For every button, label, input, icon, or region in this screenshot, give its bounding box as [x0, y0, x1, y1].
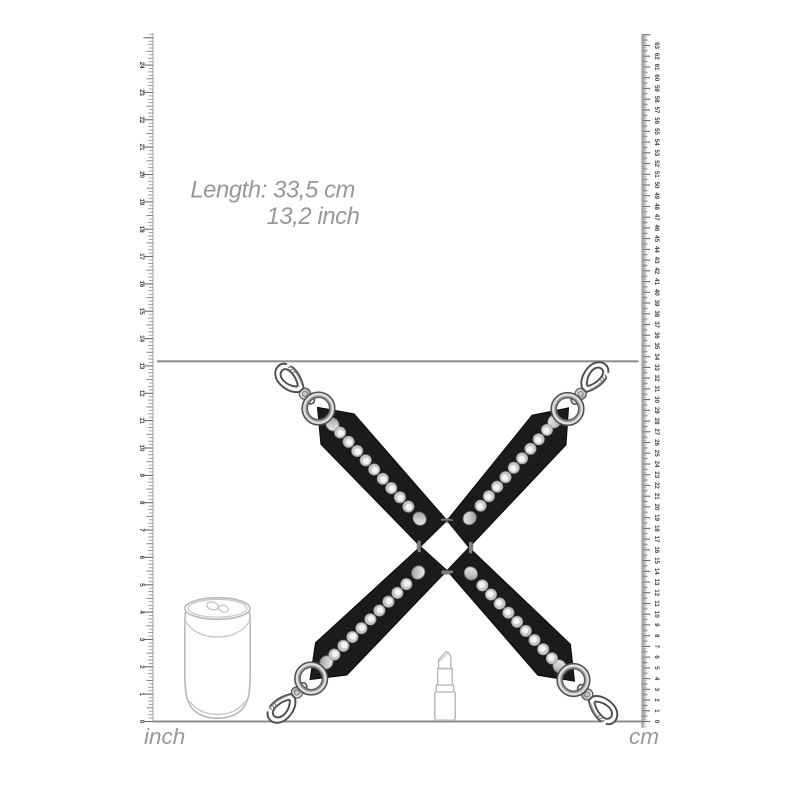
svg-text:44: 44: [653, 246, 660, 253]
svg-text:58: 58: [653, 96, 660, 103]
svg-text:13,2 inch: 13,2 inch: [267, 203, 360, 230]
svg-text:5: 5: [653, 666, 660, 670]
svg-text:15: 15: [653, 557, 660, 564]
svg-text:9: 9: [653, 623, 660, 627]
svg-text:24: 24: [653, 461, 660, 468]
svg-text:60: 60: [653, 74, 660, 81]
svg-text:7: 7: [138, 528, 145, 532]
svg-text:26: 26: [653, 439, 660, 446]
svg-text:cm: cm: [629, 724, 659, 749]
svg-text:41: 41: [653, 278, 660, 285]
svg-text:11: 11: [653, 600, 660, 607]
svg-text:38: 38: [653, 310, 660, 317]
svg-text:50: 50: [653, 182, 660, 189]
svg-text:2: 2: [653, 698, 660, 702]
svg-text:16: 16: [138, 280, 145, 287]
svg-text:13: 13: [138, 362, 145, 369]
svg-text:55: 55: [653, 128, 660, 135]
svg-text:53: 53: [653, 149, 660, 156]
svg-text:21: 21: [653, 493, 660, 500]
svg-text:36: 36: [653, 332, 660, 339]
svg-text:3: 3: [138, 638, 145, 642]
svg-text:24: 24: [138, 62, 145, 69]
svg-text:47: 47: [653, 214, 660, 221]
svg-text:19: 19: [138, 198, 145, 205]
svg-text:56: 56: [653, 117, 660, 124]
svg-text:46: 46: [653, 224, 660, 231]
svg-text:1: 1: [138, 692, 145, 696]
svg-text:5: 5: [138, 583, 145, 587]
svg-text:9: 9: [138, 474, 145, 478]
svg-text:43: 43: [653, 257, 660, 264]
svg-text:7: 7: [653, 645, 660, 649]
svg-text:40: 40: [653, 289, 660, 296]
svg-text:59: 59: [653, 85, 660, 92]
svg-text:10: 10: [653, 611, 660, 618]
svg-text:48: 48: [653, 203, 660, 210]
svg-text:52: 52: [653, 160, 660, 167]
svg-text:29: 29: [653, 407, 660, 414]
svg-text:27: 27: [653, 428, 660, 435]
svg-text:10: 10: [138, 445, 145, 452]
svg-text:12: 12: [653, 589, 660, 596]
svg-text:21: 21: [138, 144, 145, 151]
svg-text:51: 51: [653, 171, 660, 178]
svg-text:22: 22: [653, 482, 660, 489]
svg-text:19: 19: [653, 514, 660, 521]
svg-text:12: 12: [138, 390, 145, 397]
svg-text:54: 54: [653, 139, 660, 146]
svg-text:11: 11: [138, 417, 145, 424]
svg-text:6: 6: [653, 655, 660, 659]
svg-text:15: 15: [138, 308, 145, 315]
svg-text:20: 20: [138, 171, 145, 178]
svg-text:39: 39: [653, 300, 660, 307]
svg-text:3: 3: [653, 688, 660, 692]
svg-text:14: 14: [138, 335, 145, 342]
svg-text:8: 8: [653, 634, 660, 638]
svg-text:8: 8: [138, 501, 145, 505]
svg-text:34: 34: [653, 353, 660, 360]
svg-text:Length: 33,5 cm: Length: 33,5 cm: [190, 177, 355, 204]
svg-text:35: 35: [653, 342, 660, 349]
svg-text:23: 23: [653, 471, 660, 478]
svg-text:20: 20: [653, 503, 660, 510]
svg-text:17: 17: [653, 536, 660, 543]
svg-text:6: 6: [138, 556, 145, 560]
svg-text:32: 32: [653, 375, 660, 382]
svg-text:22: 22: [138, 116, 145, 123]
svg-text:16: 16: [653, 546, 660, 553]
svg-text:18: 18: [653, 525, 660, 532]
svg-text:31: 31: [653, 385, 660, 392]
svg-text:18: 18: [138, 226, 145, 233]
svg-text:63: 63: [653, 42, 660, 49]
svg-text:49: 49: [653, 192, 660, 199]
svg-text:2: 2: [138, 665, 145, 669]
svg-text:45: 45: [653, 235, 660, 242]
svg-text:42: 42: [653, 267, 660, 274]
svg-text:4: 4: [138, 610, 145, 614]
svg-text:37: 37: [653, 321, 660, 328]
svg-text:61: 61: [653, 64, 660, 71]
svg-text:62: 62: [653, 53, 660, 60]
svg-text:30: 30: [653, 396, 660, 403]
svg-text:57: 57: [653, 106, 660, 113]
svg-text:4: 4: [653, 677, 660, 681]
svg-text:inch: inch: [144, 724, 185, 749]
svg-text:23: 23: [138, 89, 145, 96]
svg-text:1: 1: [653, 709, 660, 713]
svg-text:17: 17: [138, 253, 145, 260]
svg-text:25: 25: [653, 450, 660, 457]
svg-text:14: 14: [653, 568, 660, 575]
svg-text:28: 28: [653, 418, 660, 425]
svg-text:33: 33: [653, 364, 660, 371]
svg-text:13: 13: [653, 579, 660, 586]
